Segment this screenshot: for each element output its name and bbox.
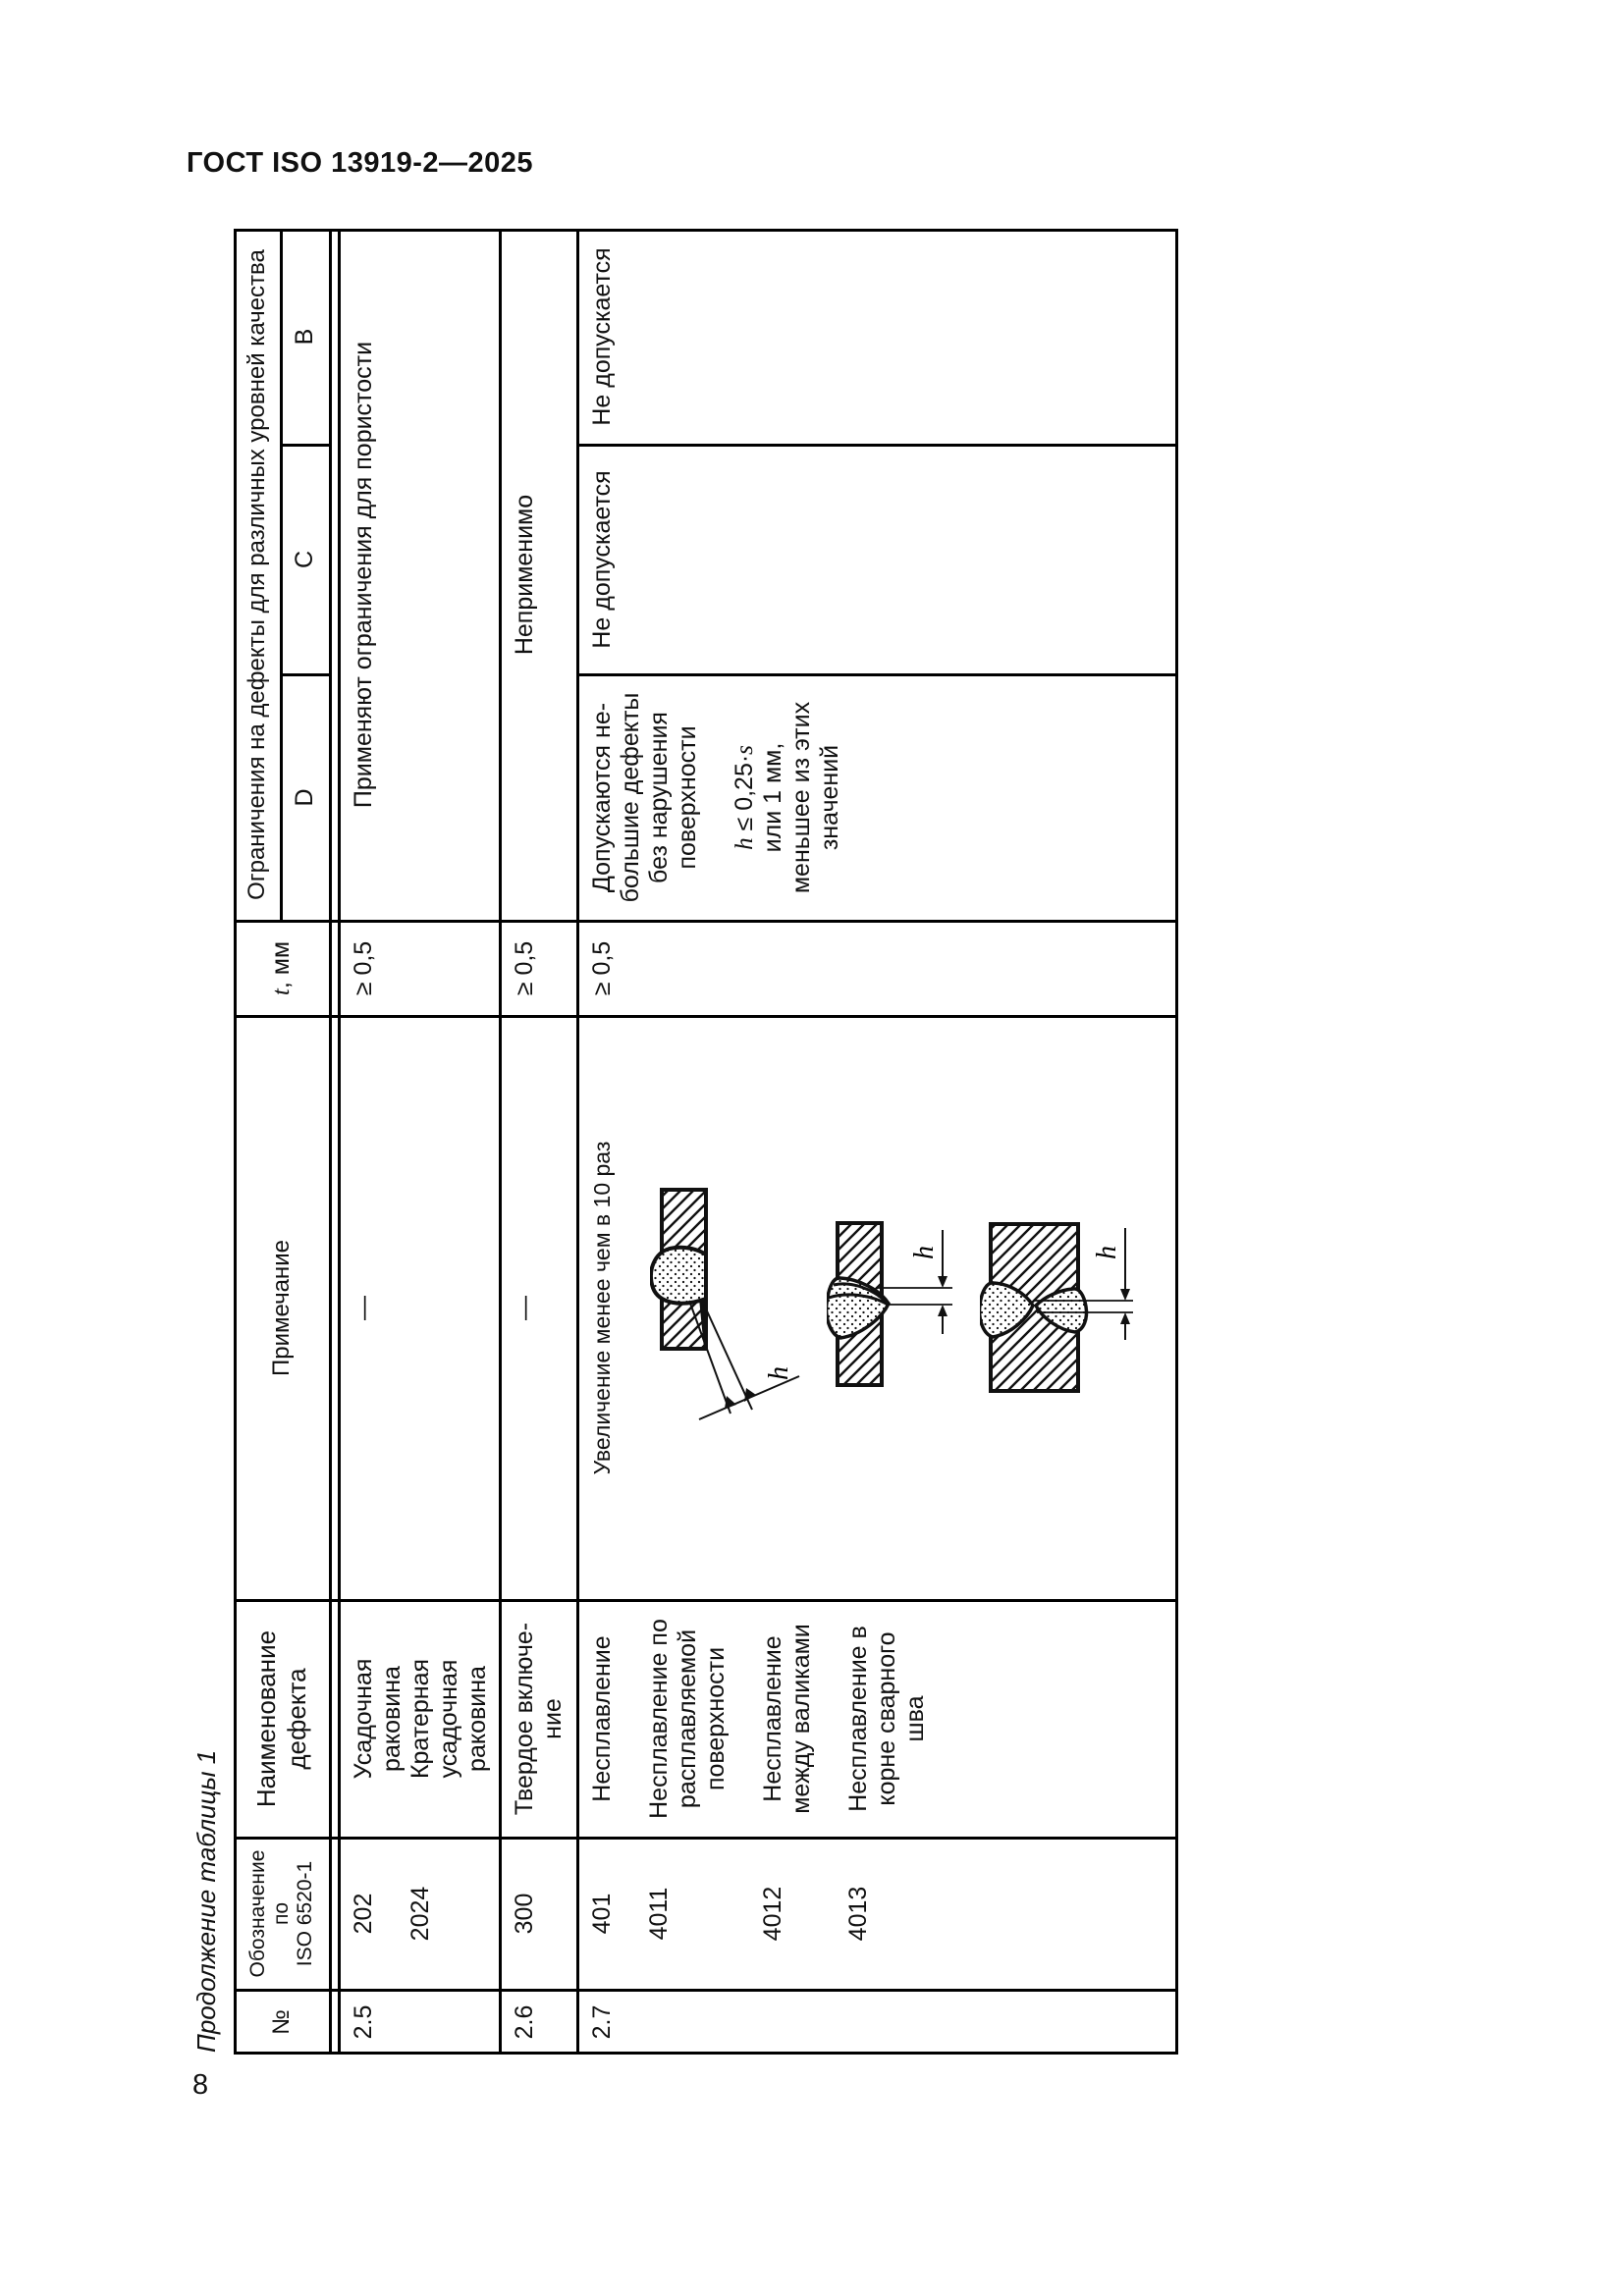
designation-2024: 2024 [406,1838,435,1990]
row25-limits-merged: Применяют ограничения для пористости [341,229,499,921]
limit-b-text: Не допускается [588,229,617,445]
header-name-line: Наименование [251,1600,282,1838]
h-dimension-label: h [909,1246,940,1259]
header-designation: Обозначение по ISO 6520-1 [234,1838,329,1990]
header-level-c: C [280,445,329,674]
row27-limit-c: Не допускается [579,445,1178,674]
row25-t: ≥ 0,5 [341,921,499,1016]
row25-name-line: усадочная [435,1600,463,1838]
h-dimension-label: h [764,1366,794,1380]
level-d-label: D [291,674,319,921]
limit-d-line: значений [816,674,844,921]
level-b-label: B [291,229,319,445]
row27-num: 2.7 [579,1990,1178,2055]
row27-name-line: Несплавление [759,1600,787,1838]
limit-d-formula: h ≤ 0,25·s [731,674,759,921]
h-dimension-label: h [1092,1246,1122,1259]
header-note-label: Примечание [267,1016,296,1600]
spacer [378,1838,406,1990]
row27-num-value: 2.7 [588,1990,617,2055]
row26-limits-text: Неприменимо [511,229,539,921]
designation-4013: 4013 [844,1838,873,1990]
row26-designation: 300 [502,1838,576,1990]
row25-name-line: раковина [378,1600,406,1838]
row27-note: Увеличение менее чем в 10 раз h [579,1016,1178,1600]
row26-name-line: Твердое включе- [511,1600,539,1838]
designation-4012: 4012 [759,1838,787,1990]
header-t-label: t, мм [267,921,296,1016]
spacer [702,1838,731,1990]
page: ГОСТ ISO 13919-2—2025 Продолжение таблиц… [0,0,1624,2296]
document-header: ГОСТ ISO 13919-2—2025 [187,147,533,180]
row27-t: ≥ 0,5 [579,921,1178,1016]
formula-h: h [731,837,758,850]
limit-d-line: большие дефекты [617,674,645,921]
row27-name-line: между валиками [787,1600,816,1838]
row25-designation: 202 2024 [341,1838,499,1990]
row25-name-line: раковина [463,1600,492,1838]
spacer [702,674,731,921]
row27-designation: 401 4011 4012 4013 [579,1838,1178,1990]
spacer [617,1838,645,1990]
header-designation-line: ISO 6520-1 [294,1838,317,1990]
header-note: Примечание [234,1016,329,1600]
header-level-d: D [280,674,329,921]
limit-d-line: поверхности [674,674,702,921]
page-number: 8 [192,2069,208,2102]
table-caption: Продолжение таблицы 1 [191,1750,222,2053]
row26-limits-merged: Неприменимо [502,229,576,921]
row27-name-line: Несплавление по [645,1600,674,1838]
row27-name-line: корне сварного [873,1600,901,1838]
figure-lack-of-root-fusion: h [980,1216,1155,1393]
row25-name-line: Усадочная [350,1600,378,1838]
header-level-b: B [280,229,329,445]
row26-num: 2.6 [502,1990,576,2055]
limit-d-line: Допускаются не- [588,674,617,921]
row27-name-line: поверхности [702,1600,731,1838]
figure-lack-of-sidewall-fusion: h [650,1180,817,1425]
row26-note-dash: — [511,1016,539,1600]
header-name-line: дефекта [282,1600,312,1838]
limit-c-text: Не допускается [588,445,617,674]
header-num-label: № [267,1990,296,2055]
row27-limit-b: Не допускается [579,229,1178,445]
row27-limit-d: Допускаются не- большие дефекты без нару… [579,674,1178,921]
spacer [617,1600,645,1838]
header-limits-group: Ограничения на дефекты для различных уро… [234,229,280,921]
row26-t-value: ≥ 0,5 [511,921,539,1016]
header-name: Наименование дефекта [234,1600,329,1838]
limit-d-line: без нарушения [645,674,674,921]
figure-lack-of-fusion-between-passes: h [827,1217,964,1389]
spacer [731,1600,759,1838]
row27-name-line: Несплавление в [844,1600,873,1838]
level-c-label: C [291,445,319,674]
row25-name: Усадочная раковина Кратерная усадочная р… [341,1600,499,1838]
t-unit: , мм [267,941,295,988]
header-limits-group-label: Ограничения на дефекты для различных уро… [243,229,271,921]
spacer [816,1838,844,1990]
row25-name-line: Кратерная [406,1600,435,1838]
row25-num-value: 2.5 [350,1990,378,2055]
spacer [674,1838,702,1990]
header-t: t, мм [234,921,329,1016]
designation-4011: 4011 [645,1838,674,1990]
header-designation-line: по [270,1838,294,1990]
row26-note: — [502,1016,576,1600]
row27-name-line: шва [901,1600,930,1838]
row26-num-value: 2.6 [511,1990,539,2055]
limit-d-line: меньшее из этих [787,674,816,921]
spacer [731,1838,759,1990]
header-designation-line: Обозначение [246,1838,270,1990]
header-num: № [234,1990,329,2055]
magnification-note: Увеличение менее чем в 10 раз [588,1016,617,1600]
row27-name-line: расплавляемой [674,1600,702,1838]
row25-t-value: ≥ 0,5 [350,921,378,1016]
row27-name: Несплавление Несплавление по расплавляем… [579,1600,1178,1838]
rotated-table-block: Продолжение таблицы 1 № Обозначение по I… [189,229,1178,2055]
designation-202: 202 [350,1838,378,1990]
row26-name-line: ние [539,1600,568,1838]
row25-note: — [341,1016,499,1600]
row26-t: ≥ 0,5 [502,921,576,1016]
row25-limits-text: Применяют ограничения для пористости [350,229,378,921]
limit-d-line: или 1 мм, [759,674,787,921]
row26-name: Твердое включе- ние [502,1600,576,1838]
spacer [816,1600,844,1838]
row27-name-line: Несплавление [588,1600,617,1838]
row25-note-dash: — [350,1016,378,1600]
formula-relation: ≤ 0,25· [731,755,758,838]
row25-num: 2.5 [341,1990,499,2055]
spacer [787,1838,816,1990]
t-variable: t [268,988,295,995]
formula-s: s [731,745,758,755]
designation-300: 300 [511,1838,539,1990]
header-separator-line-1 [329,229,332,2055]
designation-401: 401 [588,1838,617,1990]
row27-t-value: ≥ 0,5 [588,921,617,1016]
